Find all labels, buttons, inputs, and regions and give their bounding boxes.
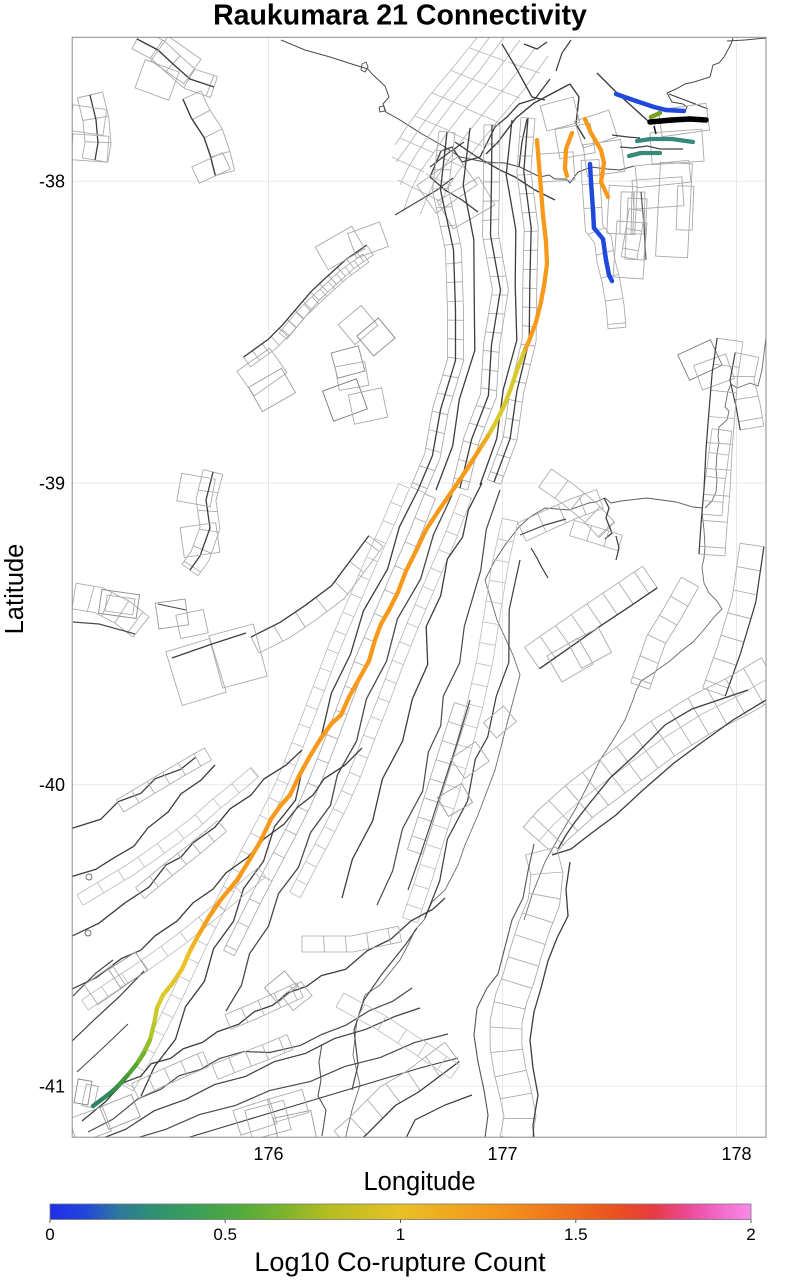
- svg-text:1: 1: [396, 1225, 405, 1244]
- svg-text:Raukumara 21 Connectivity: Raukumara 21 Connectivity: [213, 0, 587, 32]
- svg-text:0: 0: [45, 1225, 54, 1244]
- svg-text:-39: -39: [39, 473, 65, 493]
- svg-text:1.5: 1.5: [564, 1225, 588, 1244]
- svg-text:0.5: 0.5: [213, 1225, 237, 1244]
- svg-text:-40: -40: [39, 775, 65, 795]
- svg-text:Latitude: Latitude: [1, 544, 29, 635]
- svg-text:176: 176: [253, 1144, 283, 1164]
- svg-text:177: 177: [487, 1144, 517, 1164]
- svg-text:-41: -41: [39, 1077, 65, 1097]
- svg-text:-38: -38: [39, 172, 65, 192]
- svg-text:Log10 Co-rupture Count: Log10 Co-rupture Count: [254, 1247, 546, 1277]
- svg-text:Longitude: Longitude: [363, 1168, 475, 1196]
- svg-text:2: 2: [746, 1225, 755, 1244]
- svg-text:178: 178: [721, 1144, 751, 1164]
